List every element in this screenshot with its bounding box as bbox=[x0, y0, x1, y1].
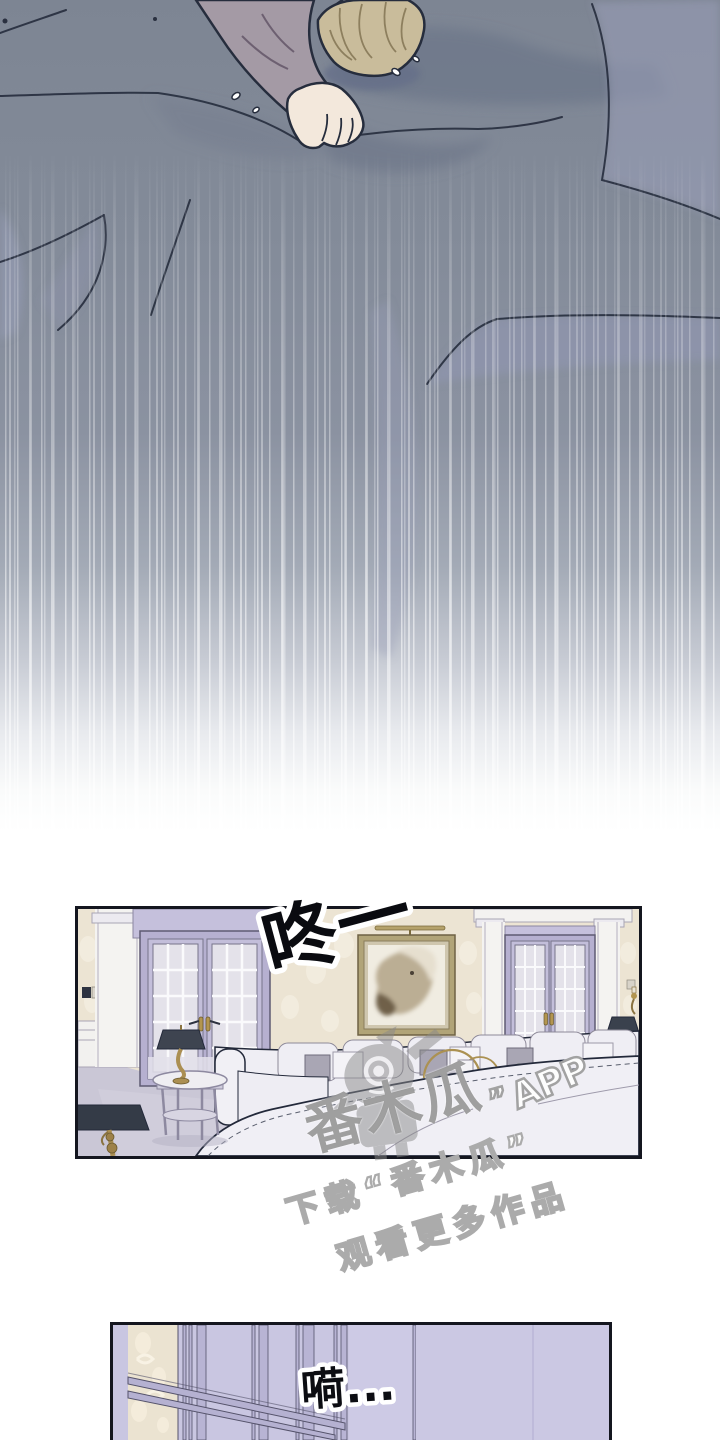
white-pillow bbox=[333, 1052, 363, 1078]
picture-light bbox=[375, 926, 445, 930]
sfx-sigh-text: 嗬... bbox=[299, 1359, 396, 1416]
door-handle bbox=[206, 1017, 210, 1031]
door-handle bbox=[550, 1013, 554, 1025]
living-room-art bbox=[78, 909, 639, 1156]
living-room-panel bbox=[75, 906, 642, 1159]
light-switch-dark bbox=[82, 987, 91, 998]
bed-scene-panel bbox=[0, 0, 720, 832]
door-handle bbox=[544, 1013, 548, 1025]
webtoon-page: { "page": { "kind": "webtoon comic page"… bbox=[0, 0, 720, 1440]
door-handle bbox=[199, 1017, 203, 1031]
window-pane-right bbox=[416, 1325, 612, 1440]
window-art: 嗬... bbox=[113, 1325, 612, 1440]
speed-lines-effect bbox=[0, 0, 720, 832]
watermark-tagline-2: 观看更多作品 bbox=[331, 1168, 575, 1280]
horse-painting bbox=[358, 926, 455, 1035]
window-closeup-panel: 嗬... bbox=[110, 1322, 612, 1440]
